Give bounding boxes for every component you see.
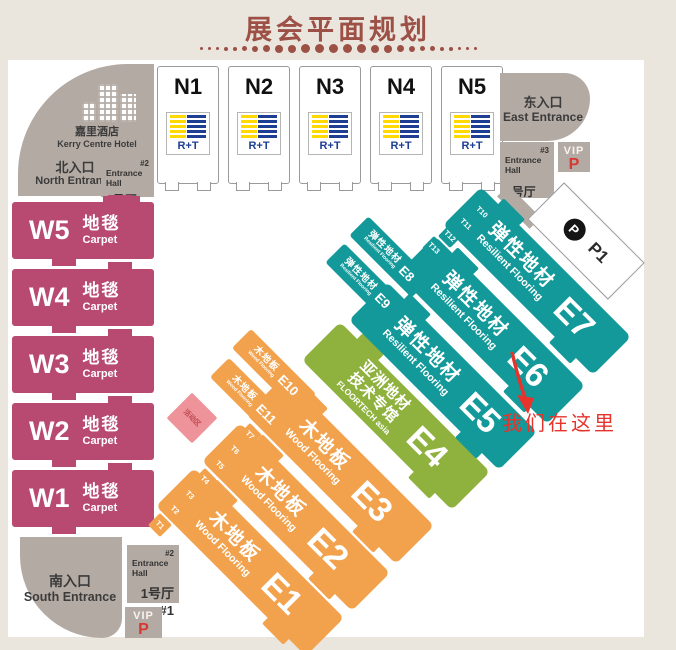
rt-logo: R+T	[237, 112, 281, 155]
hall-w5-label: W5	[29, 215, 70, 246]
south-entrance-label-en: South Entrance	[20, 590, 120, 606]
hall-w1-label: W1	[29, 483, 70, 514]
hall-n2-label: N2	[229, 74, 289, 100]
entrance-hall-1-tag: #2	[165, 549, 174, 558]
hall-n4-label: N4	[371, 74, 431, 100]
exhibition-floorplan: 展会平面规划 嘉里酒店 Kerry Centre Hotel 北入口 North…	[0, 0, 676, 650]
east-entrance-label-en: East Entrance	[500, 110, 586, 125]
rt-logo-label: R+T	[170, 140, 206, 152]
hall-n4: N4 R+T	[370, 66, 432, 184]
hall-n3-label: N3	[300, 74, 360, 100]
east-entrance-label-cn: 东入口	[500, 95, 586, 111]
vip-parking-east: VIP P	[558, 142, 590, 172]
hotel-name-en: Kerry Centre Hotel	[46, 139, 148, 150]
hall-n5: N5 R+T	[441, 66, 503, 184]
hall-w1-en: Carpet	[83, 502, 121, 514]
entrance-hall-3-label: Entrance Hall	[505, 155, 549, 175]
rt-logo: R+T	[308, 112, 352, 155]
hall-w3-label: W3	[29, 349, 70, 380]
rt-shutter-icon	[312, 115, 348, 139]
parking-icon: P	[558, 157, 590, 174]
parking-p1-label: P1	[584, 239, 613, 268]
hall-w5: W5 地毯 Carpet	[12, 202, 154, 259]
rt-logo-label: R+T	[312, 140, 348, 152]
rt-shutter-icon	[170, 115, 206, 139]
page-title: 展会平面规划	[0, 8, 676, 47]
hall-w4-cn: 地毯	[83, 282, 121, 301]
hall-n1: N1 R+T	[157, 66, 219, 184]
hall-e10-label: E10	[275, 372, 302, 399]
hall-n2: N2 R+T	[228, 66, 290, 184]
rt-logo: R+T	[450, 112, 494, 155]
parking-icon: P	[125, 622, 162, 639]
hall-e11-label: E11	[253, 401, 279, 427]
hotel-name-cn: 嘉里酒店	[46, 126, 148, 140]
hall-w2-cn: 地毯	[83, 416, 121, 435]
entrance-hall-1-name: 1号厅	[141, 583, 174, 602]
entrance-hall-2-label: Entrance Hall	[106, 168, 149, 188]
rt-logo-label: R+T	[383, 140, 419, 152]
hall-w1: W1 地毯 Carpet	[12, 470, 154, 527]
hall-w5-cn: 地毯	[83, 215, 121, 234]
we-are-here-label: 我们在这里	[502, 407, 617, 436]
rt-logo-label: R+T	[241, 140, 277, 152]
hall-e9-label: E9	[372, 290, 394, 312]
entrance-hall-1: #2 Entrance Hall 1号厅 #1	[127, 545, 179, 603]
rt-logo-label: R+T	[454, 140, 490, 152]
hall-w3-cn: 地毯	[83, 349, 121, 368]
hall-n5-label: N5	[442, 74, 502, 100]
hall-w2-label: W2	[29, 416, 70, 447]
entrance-hall-2: #2 Entrance Hall 2号厅 #2	[101, 155, 154, 197]
entrance-hall-1-label: Entrance Hall	[132, 558, 174, 578]
hall-w5-en: Carpet	[83, 234, 121, 246]
rt-shutter-icon	[383, 115, 419, 139]
rt-shutter-icon	[454, 115, 490, 139]
hall-n3: N3 R+T	[299, 66, 361, 184]
vip-parking-south: VIP P	[125, 607, 162, 638]
hall-n1-label: N1	[158, 74, 218, 100]
hall-w2: W2 地毯 Carpet	[12, 403, 154, 460]
south-entrance-label-cn: 南入口	[20, 573, 120, 591]
entrance-hall-2-tag: #2	[140, 159, 149, 168]
hall-w4-label: W4	[29, 282, 70, 313]
title-dots-decoration	[0, 44, 676, 53]
hall-w4: W4 地毯 Carpet	[12, 269, 154, 326]
hall-w1-cn: 地毯	[83, 483, 121, 502]
hall-e8-label: E8	[396, 263, 418, 285]
hall-w2-en: Carpet	[83, 435, 121, 447]
hall-w3-en: Carpet	[83, 368, 121, 380]
hall-w4-en: Carpet	[83, 301, 121, 313]
parking-icon: P	[559, 214, 590, 245]
rt-shutter-icon	[241, 115, 277, 139]
hotel-building-icon	[82, 84, 136, 122]
hall-w3: W3 地毯 Carpet	[12, 336, 154, 393]
entrance-hall-3-tag: #3	[540, 146, 549, 155]
rt-logo: R+T	[379, 112, 423, 155]
rt-logo: R+T	[166, 112, 210, 155]
